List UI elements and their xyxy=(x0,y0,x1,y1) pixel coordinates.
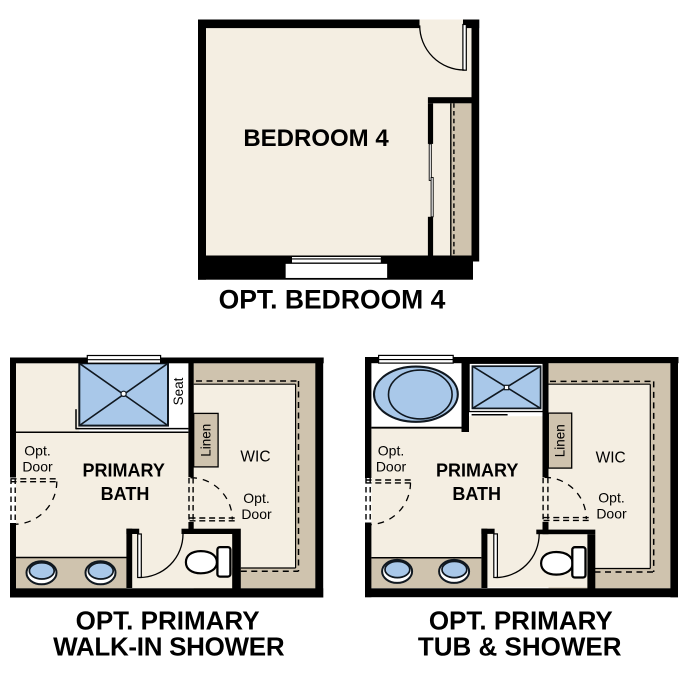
svg-text:Opt.: Opt. xyxy=(243,490,269,506)
svg-text:BEDROOM 4: BEDROOM 4 xyxy=(243,125,389,152)
svg-text:TUB & SHOWER: TUB & SHOWER xyxy=(418,632,622,662)
svg-text:BATH: BATH xyxy=(101,484,150,504)
svg-text:WALK-IN SHOWER: WALK-IN SHOWER xyxy=(53,632,285,662)
svg-text:Door: Door xyxy=(22,459,53,475)
svg-text:OPT. BEDROOM 4: OPT. BEDROOM 4 xyxy=(219,285,446,315)
svg-text:PRIMARY: PRIMARY xyxy=(436,460,518,480)
svg-text:Opt.: Opt. xyxy=(598,490,624,506)
svg-text:WIC: WIC xyxy=(596,450,626,467)
svg-text:Door: Door xyxy=(376,459,407,475)
svg-text:Seat: Seat xyxy=(171,377,186,405)
svg-text:PRIMARY: PRIMARY xyxy=(83,460,165,480)
svg-text:BATH: BATH xyxy=(452,484,501,504)
svg-text:Linen: Linen xyxy=(199,424,214,457)
svg-text:Linen: Linen xyxy=(553,424,568,457)
svg-text:WIC: WIC xyxy=(240,449,270,466)
svg-text:Opt.: Opt. xyxy=(24,443,50,459)
svg-text:Door: Door xyxy=(596,506,627,522)
svg-text:Opt.: Opt. xyxy=(378,443,404,459)
svg-text:Door: Door xyxy=(241,506,272,522)
